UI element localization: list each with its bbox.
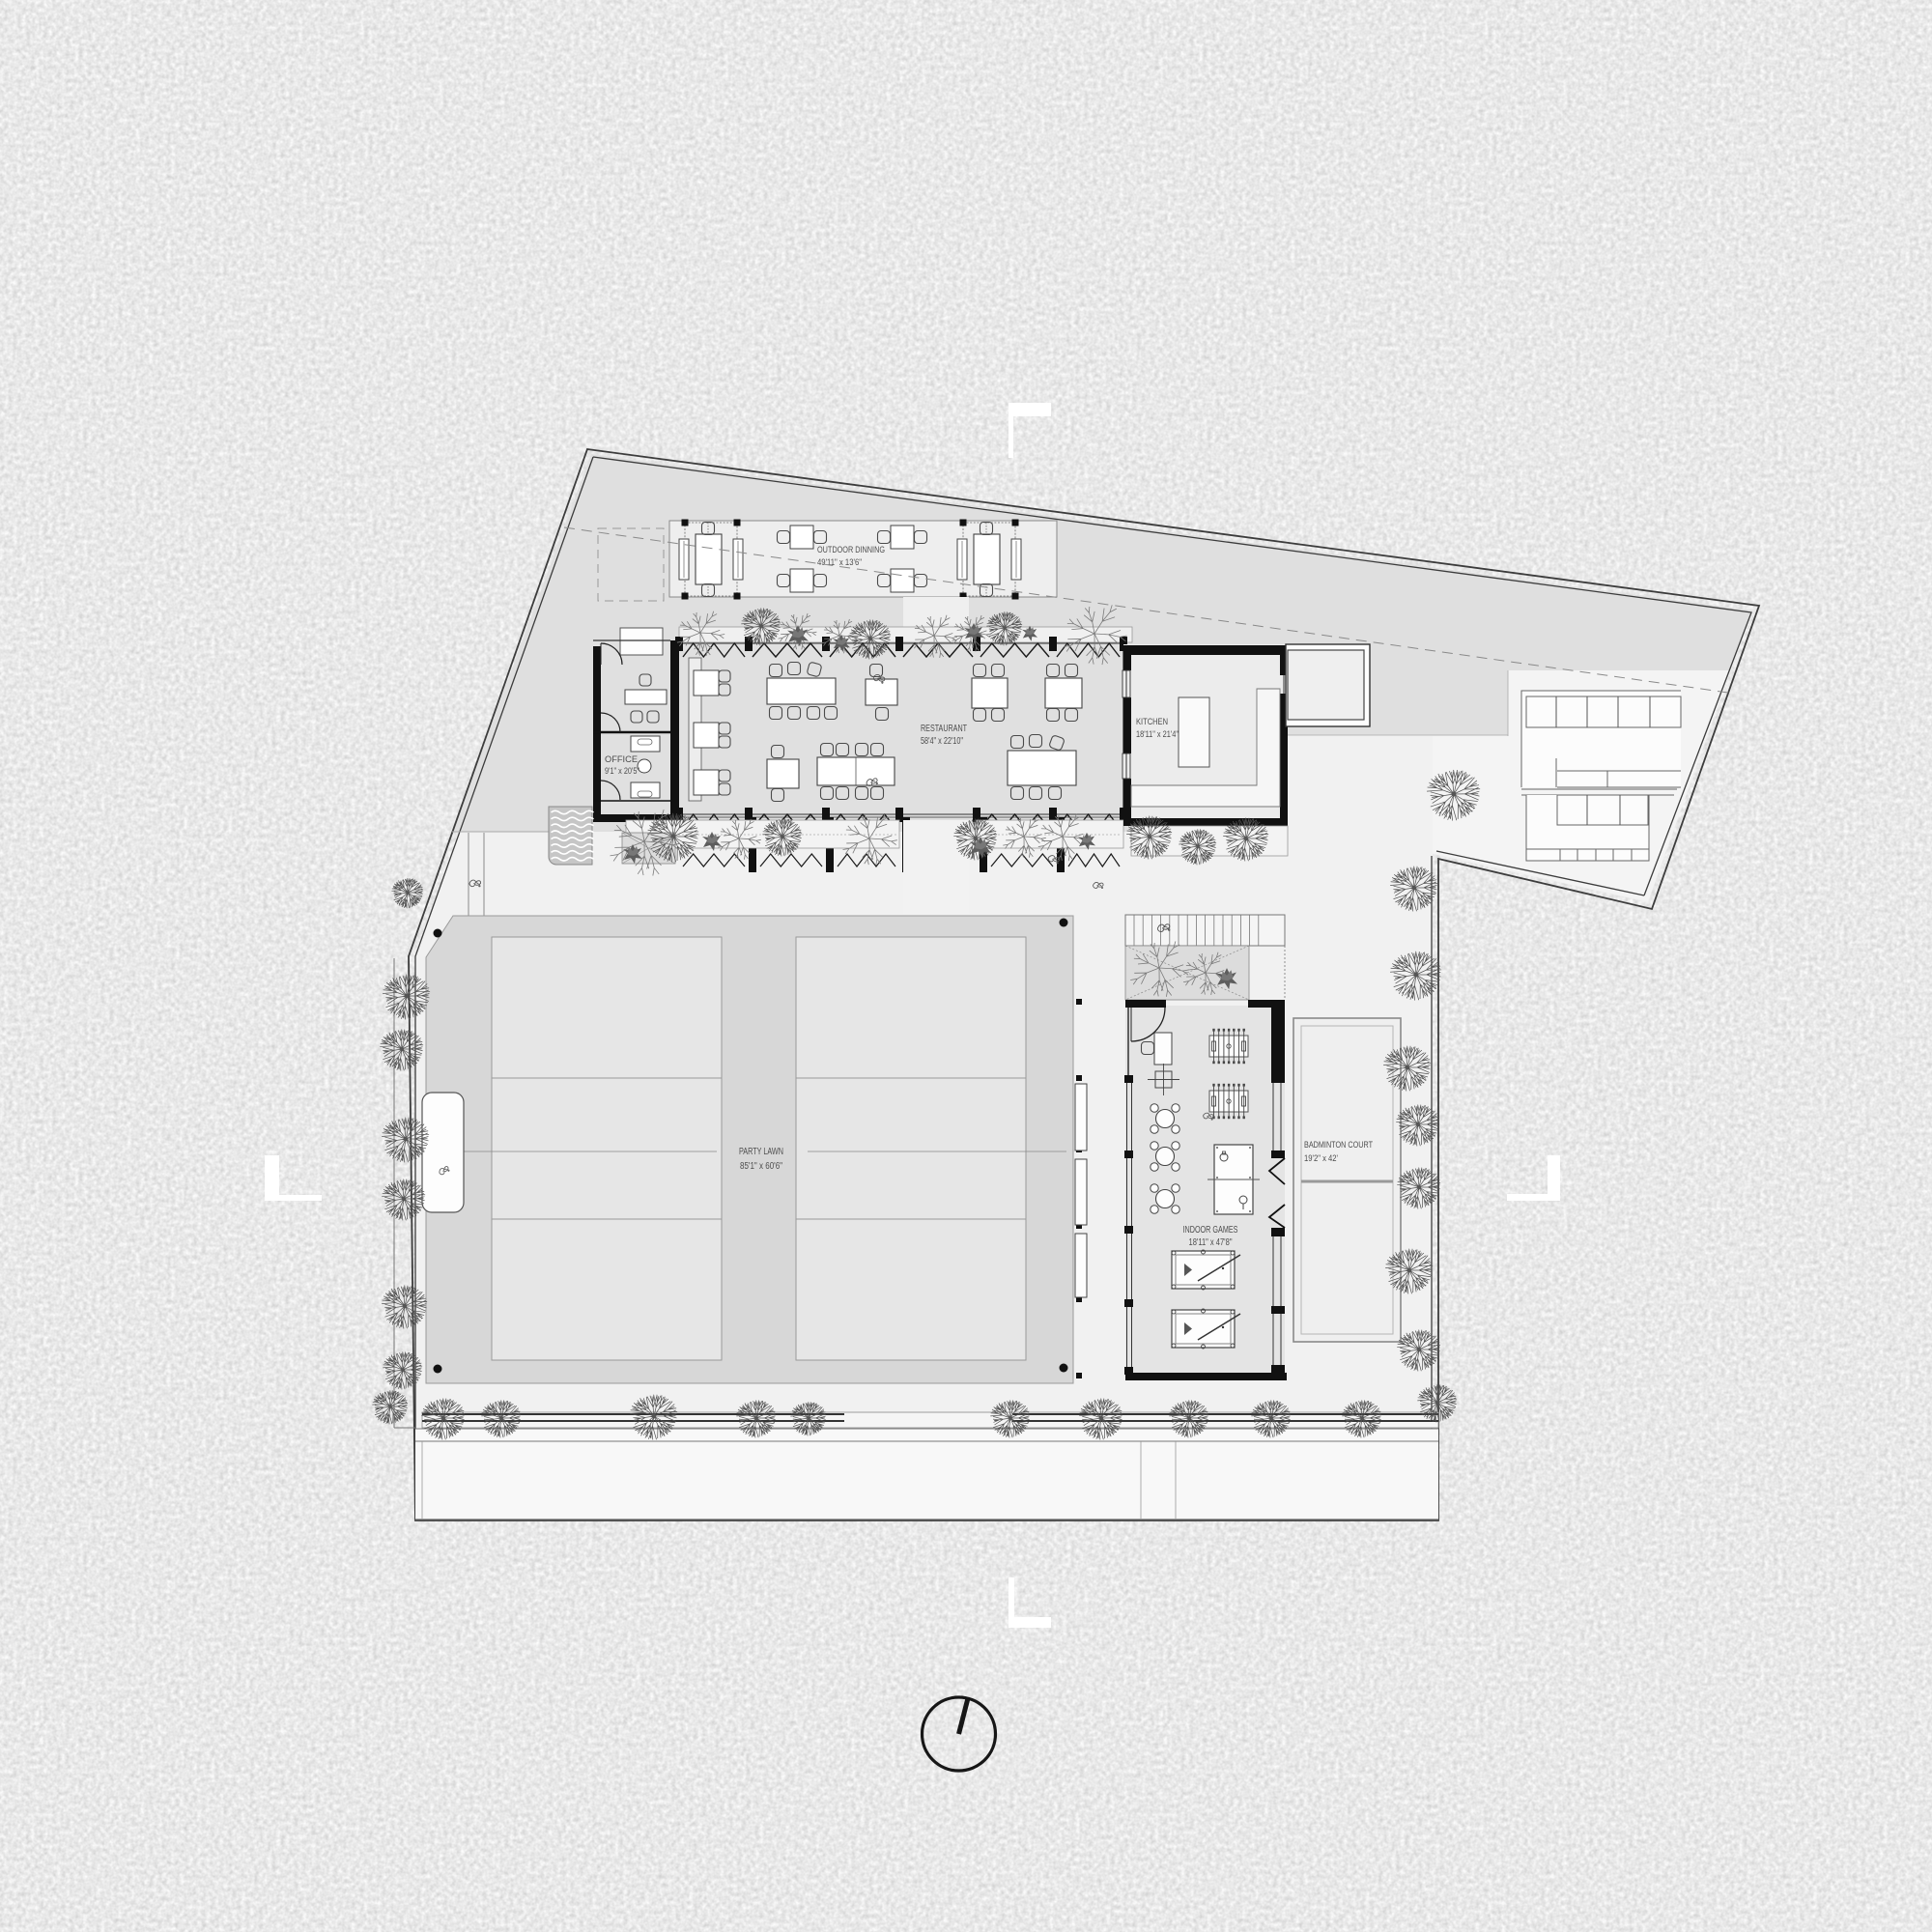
svg-text:BADMINTON COURT: BADMINTON COURT [1304, 1140, 1373, 1151]
svg-text:9'1" x 20'5": 9'1" x 20'5" [605, 766, 639, 776]
svg-text:19'2" x 42': 19'2" x 42' [1304, 1153, 1338, 1164]
svg-text:PARTY LAWN: PARTY LAWN [739, 1147, 783, 1157]
svg-text:INDOOR GAMES: INDOOR GAMES [1183, 1225, 1238, 1236]
svg-text:58'4" x 22'10": 58'4" x 22'10" [921, 736, 963, 747]
svg-text:RESTAURANT: RESTAURANT [921, 724, 967, 734]
svg-text:OUTDOOR DINNING: OUTDOOR DINNING [817, 545, 885, 555]
svg-text:49'11" x 13'6": 49'11" x 13'6" [817, 557, 862, 568]
svg-text:85'1" x 60'6": 85'1" x 60'6" [740, 1161, 782, 1172]
svg-text:18'11" x 47'8": 18'11" x 47'8" [1189, 1237, 1233, 1248]
svg-text:18'11" x 21'4": 18'11" x 21'4" [1136, 729, 1179, 740]
svg-text:OFFICE: OFFICE [605, 754, 638, 764]
svg-text:KITCHEN: KITCHEN [1136, 717, 1168, 727]
